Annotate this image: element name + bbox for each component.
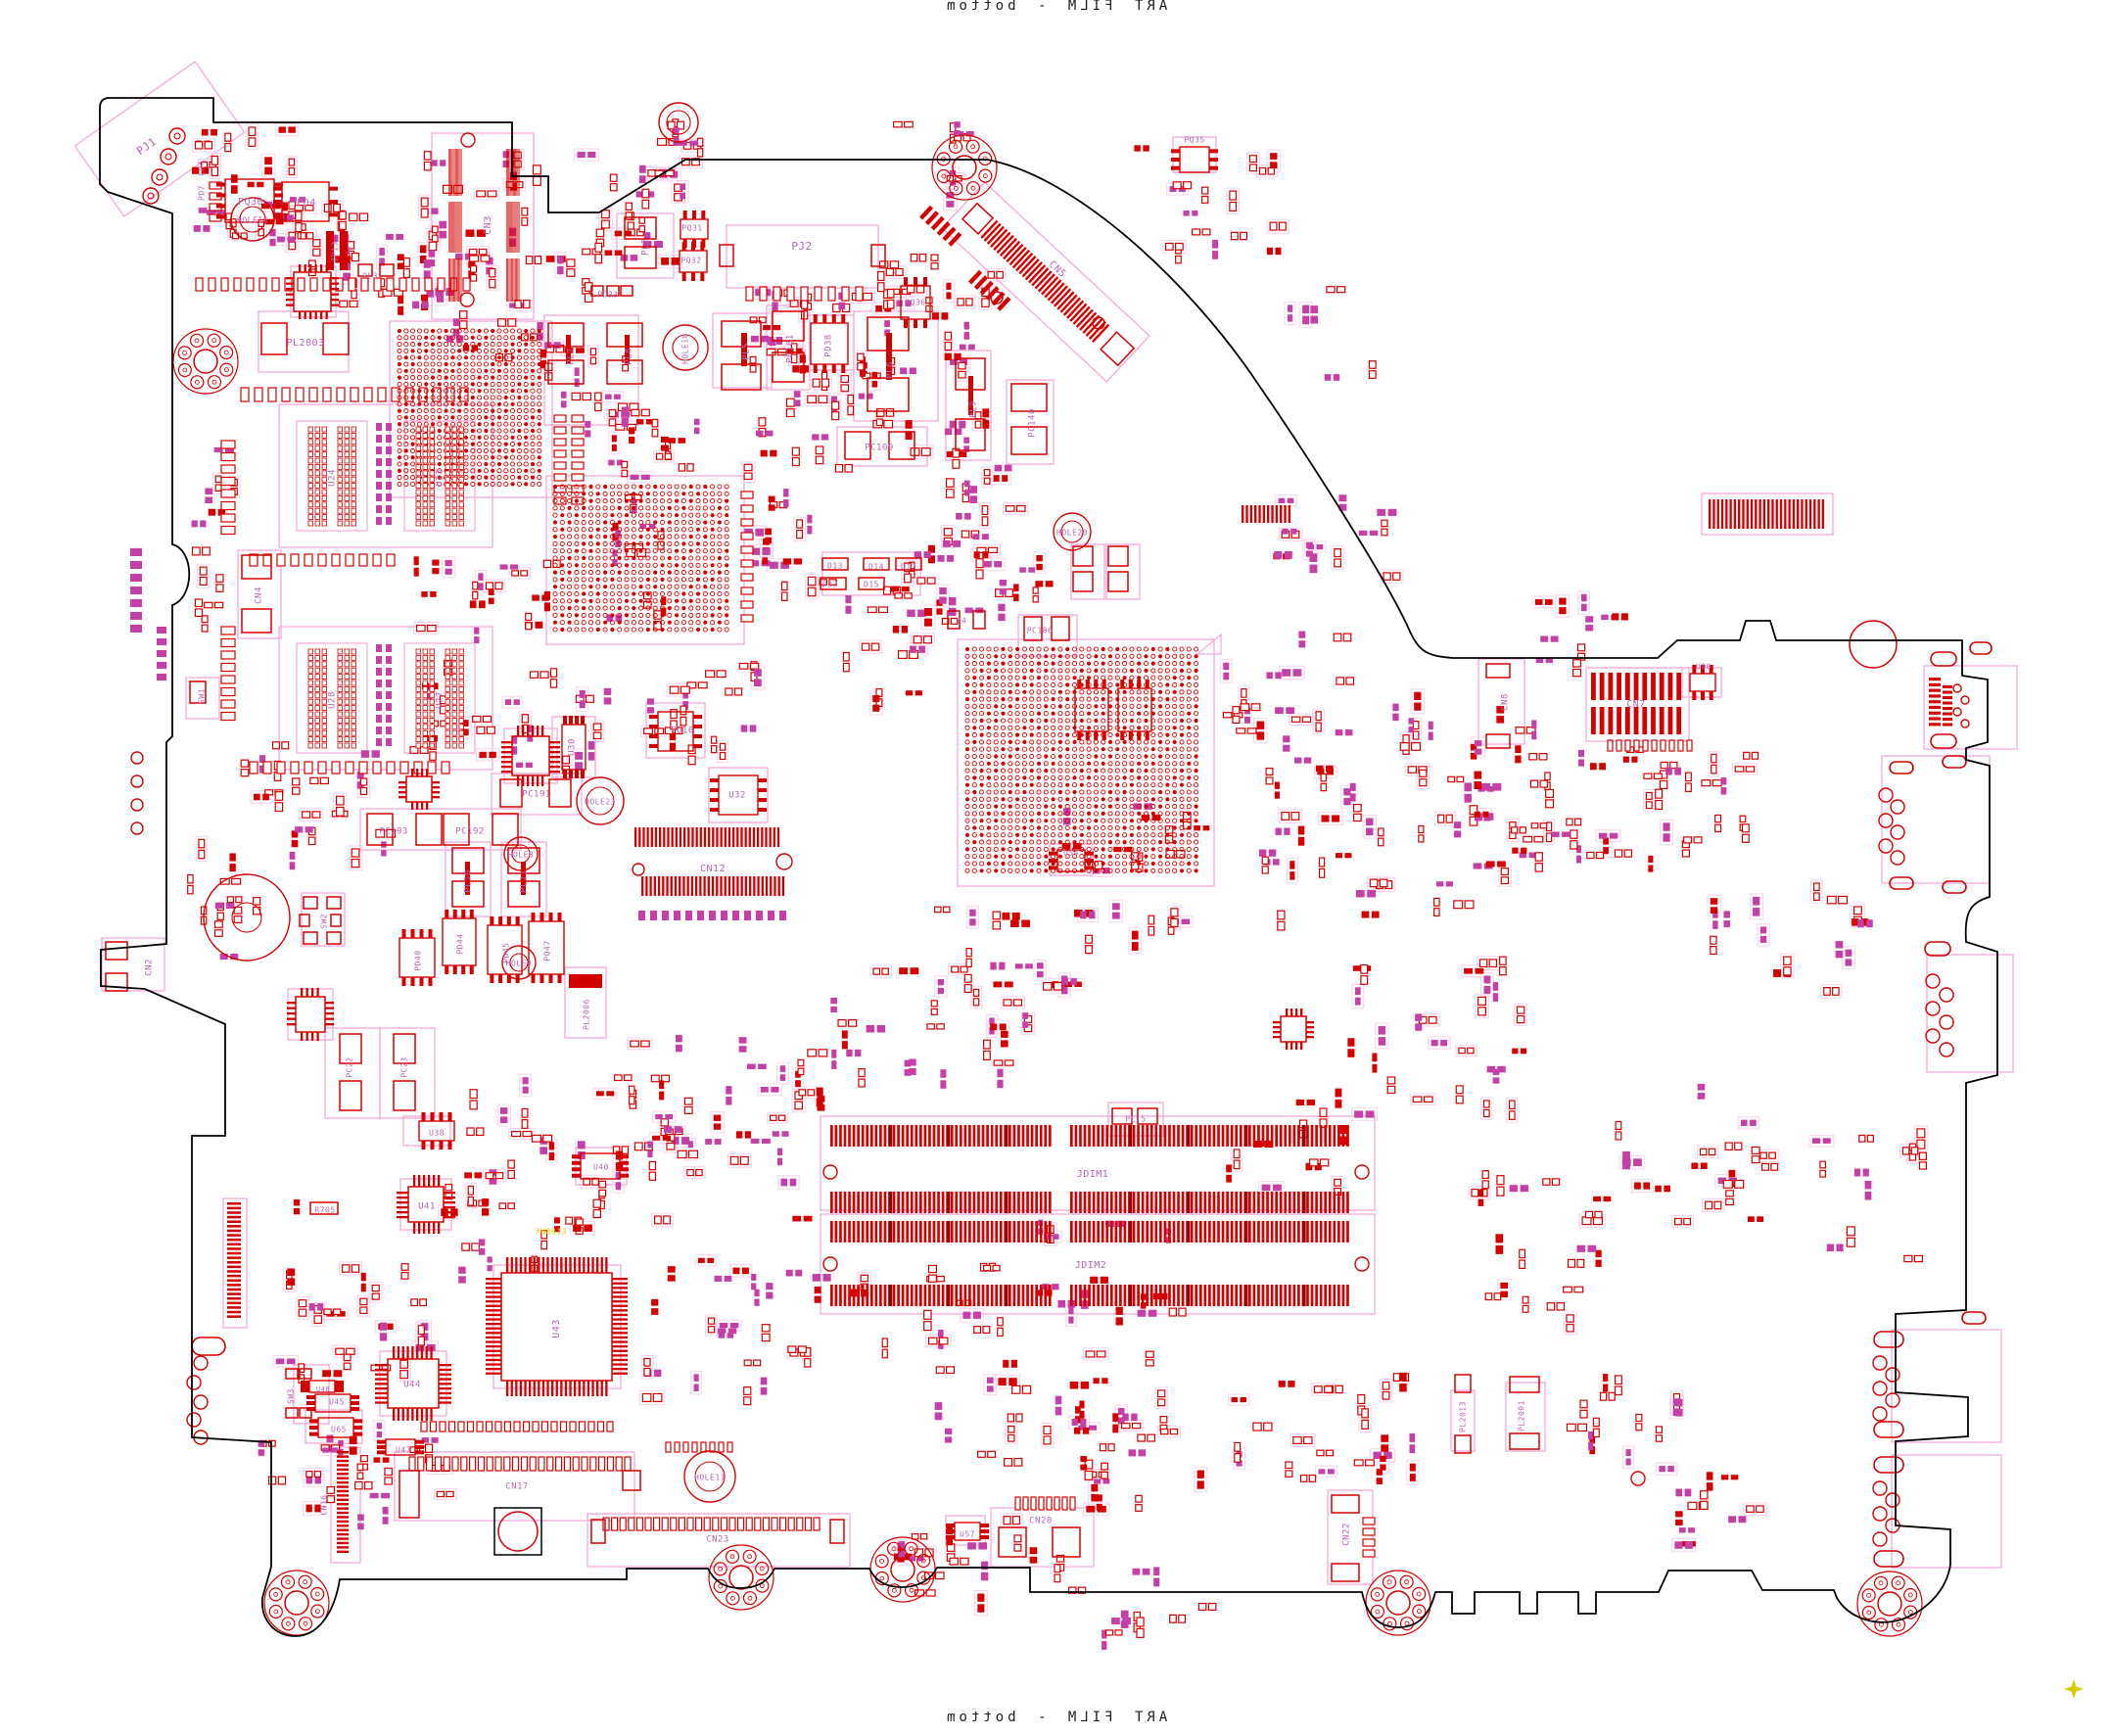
- component-label: PL2: [641, 238, 651, 256]
- component-label: CN22: [1342, 1523, 1352, 1546]
- component-label: PQ30: [238, 197, 263, 208]
- component-label: PD38: [824, 334, 834, 357]
- component-label: Y4: [957, 617, 967, 626]
- component-label: PL2006: [583, 999, 591, 1030]
- connector-pins: [448, 202, 462, 253]
- component-label: HOLE16: [237, 216, 268, 225]
- component-label: U47: [396, 1446, 411, 1455]
- component-label: PC192: [455, 827, 485, 837]
- component-label: PC186: [1027, 627, 1054, 635]
- title-bottom-text: ART FILM - bottom: [943, 1710, 1167, 1725]
- component-label: PC181: [786, 334, 796, 363]
- component-label: PC22: [346, 1056, 354, 1077]
- screw-boss-hole: [709, 1545, 774, 1610]
- component-label: PU16: [671, 727, 694, 736]
- component-label: PC23: [400, 1056, 409, 1077]
- component-label: U23: [436, 469, 445, 487]
- component-label: PL3: [362, 272, 378, 281]
- soic-chip: [1118, 680, 1151, 740]
- component-label: PQ47: [543, 940, 552, 961]
- component-label: U24: [328, 469, 338, 487]
- qfp-chip: [287, 988, 334, 1041]
- fiducial-star: [2064, 1679, 2084, 1699]
- bga-grid: [553, 485, 728, 632]
- component-label: CN3: [483, 215, 493, 235]
- component-label: PL9: [969, 400, 979, 418]
- component-label: U30: [568, 738, 578, 756]
- component-label: HOLE18: [681, 333, 690, 364]
- connector-pins: [634, 827, 779, 847]
- component-label: PQ32: [680, 257, 701, 265]
- component-label: HOLE23: [585, 798, 616, 807]
- component-label: D12: [901, 563, 916, 572]
- component-label: PQ36: [905, 299, 925, 307]
- component-label: PL5: [742, 343, 752, 360]
- component-label: PD45: [502, 942, 511, 962]
- label-layer: PJ1L04PD7PQ30PD4CN3PL2003JP13PL3PQ31PQ32…: [134, 135, 1711, 1546]
- component-label: PL2001: [1518, 1400, 1526, 1431]
- component-label: D13: [827, 562, 843, 571]
- qfp-chip: [286, 264, 339, 319]
- component-label: U44: [403, 1381, 421, 1390]
- component-label: SW2: [320, 914, 329, 929]
- component-label: SW3: [287, 1388, 296, 1404]
- component-label: JDIM1: [1077, 1169, 1109, 1180]
- screw-boss-hole: [932, 135, 997, 200]
- soic-chip: [1171, 147, 1218, 172]
- component-label: HOLE11: [694, 1474, 726, 1482]
- soic-chip: [1075, 680, 1108, 740]
- component-label: U40: [593, 1163, 609, 1172]
- component-label: SW1: [198, 688, 207, 704]
- component-label: CN17: [505, 1482, 529, 1492]
- connector-pins: [1709, 499, 1824, 529]
- component-label: U45: [329, 1398, 345, 1407]
- copper-layer: [106, 103, 1992, 1650]
- component-label: L04: [198, 161, 207, 176]
- component-label: PL8: [625, 348, 634, 365]
- component-label: U27: [436, 691, 445, 709]
- component-label: U54: [1063, 849, 1079, 858]
- screw-boss-hole: [173, 329, 238, 394]
- component-label: PL15: [1125, 1115, 1146, 1124]
- component-label: D15: [864, 581, 879, 589]
- component-label: CN8: [1501, 693, 1511, 711]
- component-label: PL2013: [1459, 1401, 1468, 1432]
- component-label: PC191: [522, 790, 551, 800]
- connector-pins: [1242, 505, 1290, 523]
- connector-pins: [641, 876, 784, 896]
- component-label: PL10: [464, 869, 474, 893]
- connector-pins: [919, 206, 961, 247]
- component-label: U38: [429, 1129, 445, 1138]
- component-label: PL7: [567, 348, 577, 365]
- component-label: U65: [331, 1426, 347, 1434]
- connector-pins: [506, 202, 520, 253]
- connector-pins: [1591, 707, 1681, 734]
- component-label: PQ35: [1184, 136, 1204, 145]
- component-label: PD40: [414, 950, 423, 970]
- component-label: U57: [960, 1530, 975, 1539]
- component-label: U41: [418, 1202, 436, 1212]
- component-label: PL11: [520, 869, 530, 893]
- connector-pins: [506, 258, 519, 302]
- title-bottom: ART FILM - bottom: [0, 1710, 2110, 1725]
- component-label: PD44: [456, 933, 465, 954]
- connector-pins: [1591, 673, 1681, 700]
- component-label: PJ1: [134, 135, 159, 158]
- qfp-chip: [399, 769, 440, 810]
- component-label: CN7: [1626, 699, 1646, 710]
- component-label: D33: [822, 581, 838, 589]
- component-label: PQ31: [681, 224, 702, 233]
- screw-boss-hole: [1857, 1572, 1922, 1636]
- component-label: R705: [314, 1206, 335, 1215]
- component-label: CN20: [1029, 1517, 1053, 1526]
- component-label: PD4: [297, 198, 316, 209]
- bga-grid: [965, 647, 1198, 873]
- component-label: JP13: [331, 241, 340, 261]
- component-label: U28: [328, 691, 338, 709]
- component-label: D14: [868, 563, 884, 572]
- component-label: PC109: [865, 444, 894, 453]
- component-label: XW8013: [536, 1228, 567, 1237]
- component-label: CN2: [145, 959, 155, 976]
- component-label: CN5: [1047, 259, 1068, 280]
- component-label: HOLE20: [1056, 529, 1088, 538]
- component-label: U90: [1696, 663, 1711, 672]
- component-label: PL6: [886, 361, 896, 379]
- component-label: PC140: [1028, 408, 1038, 438]
- pcb-board-drawing: PJ1L04PD7PQ30PD4CN3PL2003JP13PL3PQ31PQ32…: [0, 0, 2110, 1736]
- component-label: HOLE8: [508, 851, 535, 860]
- qfp-chip: [1273, 1009, 1314, 1050]
- component-label: CN12: [700, 864, 726, 874]
- art-film-page: ART FILM - bottom PJ1L04PD7PQ30PD4CN3PL2…: [0, 0, 2110, 1736]
- component-label: PC193: [379, 827, 408, 837]
- component-label: PD7: [198, 185, 207, 201]
- component-label: PL2003: [286, 338, 324, 349]
- component-label: U43: [551, 1319, 562, 1338]
- component-label: CN16: [320, 1494, 329, 1515]
- component-label: CN4: [255, 586, 264, 604]
- component-label: JDIM2: [1075, 1260, 1107, 1271]
- component-label: PJ2: [791, 240, 812, 253]
- component-label: CN23: [706, 1535, 729, 1545]
- component-label: U48: [316, 1385, 330, 1393]
- screw-boss-hole: [1366, 1571, 1430, 1635]
- component-label: PD33: [597, 291, 618, 300]
- component-label: U32: [728, 791, 746, 801]
